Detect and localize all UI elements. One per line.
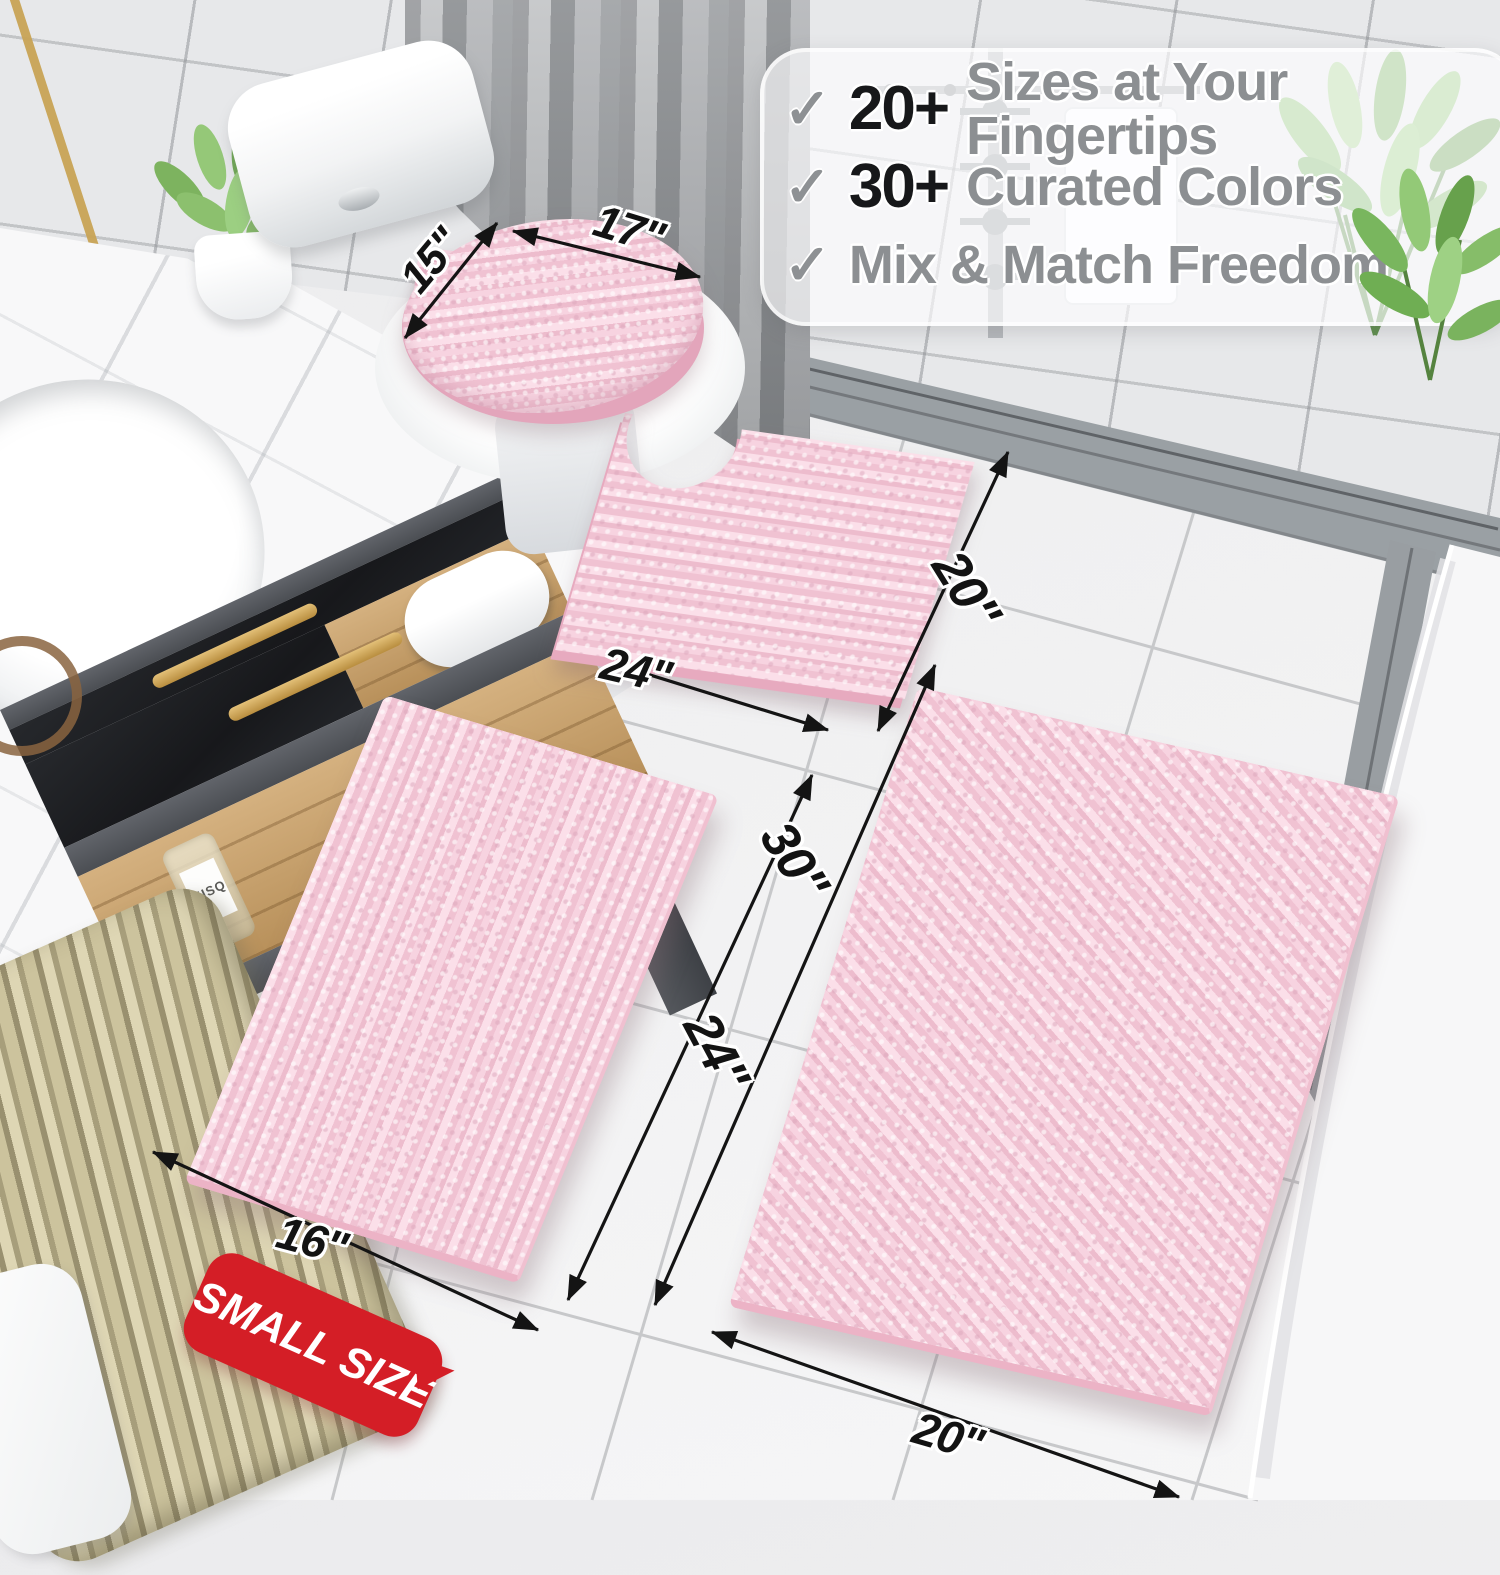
check-icon: ✓ <box>784 237 831 293</box>
callout-stat: 30+ <box>849 156 948 218</box>
callout-label: Curated Colors <box>966 160 1342 214</box>
bath-rug-product-image: { "callout": { "items": [ {"check": "✓",… <box>0 0 1500 1500</box>
potted-plant-front <box>1340 160 1500 390</box>
callout-row-sizes: ✓ 20+ Sizes at Your Fingertips <box>784 72 1500 146</box>
callout-label: Mix & Match Freedom <box>849 238 1388 292</box>
callout-stat: 20+ <box>849 78 948 140</box>
arrow-large-rug-length <box>655 665 935 1305</box>
check-icon: ✓ <box>784 159 831 215</box>
callout-label: Sizes at Your Fingertips <box>966 55 1500 163</box>
check-icon: ✓ <box>784 81 831 137</box>
